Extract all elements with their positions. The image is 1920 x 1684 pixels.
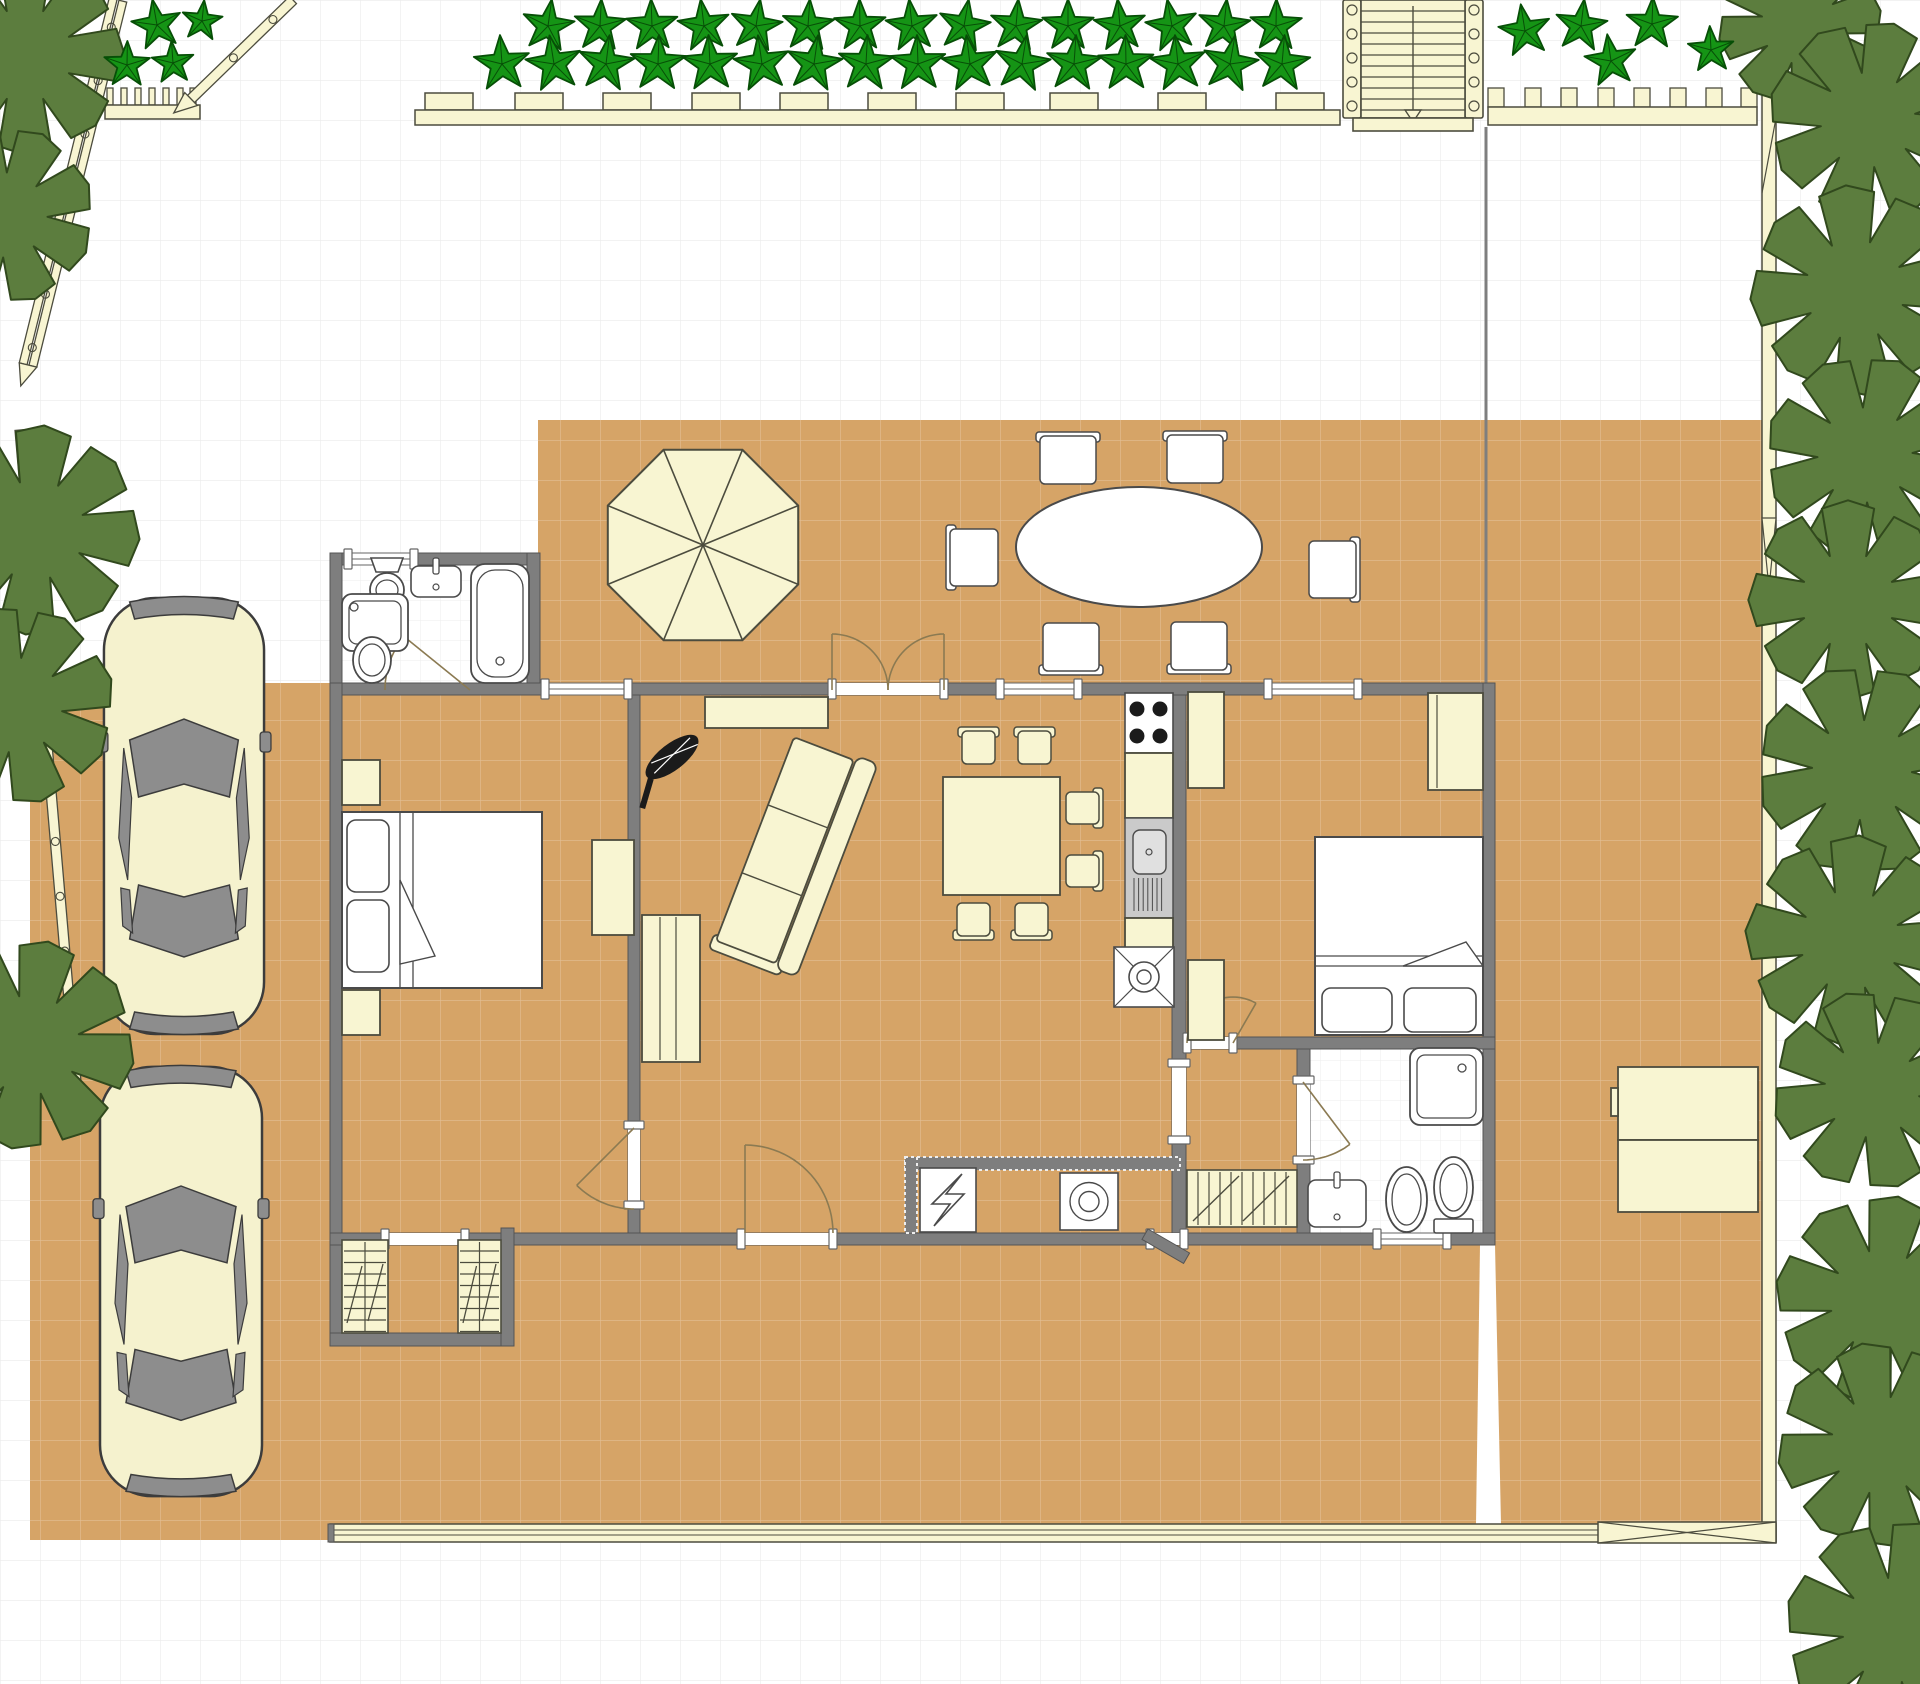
staircase-hall[interactable] [1187,1170,1297,1227]
garden-chair[interactable] [1039,623,1103,675]
garden-chair[interactable] [1036,432,1100,484]
exterior-stairs-right[interactable] [458,1240,501,1333]
dining-chair[interactable] [1066,788,1103,828]
dining-chair[interactable] [1011,903,1052,940]
shower-right-bath[interactable] [1410,1048,1483,1125]
sideboard-living[interactable] [705,697,828,728]
stairs-enc-left [330,1245,342,1345]
right-yard [1495,420,1765,1524]
stairs-enc-right [501,1228,514,1346]
bathtub[interactable] [471,564,529,683]
garden-table-oval[interactable] [1016,487,1262,607]
house-right [1483,683,1495,1245]
garden-table-handle[interactable] [1611,1088,1618,1116]
garden-chair[interactable] [1167,622,1231,674]
toilet-right-2[interactable] [1434,1157,1473,1233]
garden-chair[interactable] [1163,431,1227,483]
fence-bottom[interactable] [328,1522,1776,1543]
partition-left [905,1157,917,1233]
bathL-left [330,553,342,695]
exterior-stairs-left[interactable] [342,1240,388,1333]
nightstand-top[interactable] [342,760,380,805]
shelf-unit-living[interactable] [642,915,700,1062]
garden-table-br-2[interactable] [1618,1140,1758,1212]
dining-chair[interactable] [958,727,999,764]
kitchen-sink-unit[interactable] [1125,818,1173,918]
car-2[interactable] [93,1065,269,1496]
cabinet-right-bedroom-b[interactable] [1188,960,1224,1040]
patio-umbrella[interactable] [608,450,798,640]
dining-chair[interactable] [1014,727,1055,764]
dresser-left-bedroom[interactable] [592,840,634,935]
stairs-enc-bottom [330,1333,514,1346]
kitchen-counter-1[interactable] [1125,753,1173,818]
nightstand-bottom[interactable] [342,990,380,1035]
garden-chair[interactable] [946,525,998,590]
dining-chair[interactable] [953,903,994,940]
plan-svg [0,0,1920,1684]
stove[interactable] [1125,693,1173,753]
appliance-x[interactable] [1114,947,1174,1007]
garden-stairs-top[interactable] [1343,0,1483,131]
washing-machine[interactable] [1060,1173,1118,1230]
bed-right-bedroom[interactable] [1315,837,1483,1035]
toilet-right-1[interactable] [1386,1167,1427,1232]
garden-table-br-1[interactable] [1618,1067,1758,1140]
electrical-panel[interactable] [920,1168,976,1232]
washbasin-right-bath[interactable] [1308,1172,1366,1227]
wardrobe-right-bedroom-a[interactable] [1188,692,1224,788]
long-planter[interactable] [415,93,1340,125]
dining-table-square[interactable] [943,777,1060,895]
car-1[interactable] [97,597,271,1035]
garden-chair[interactable] [1309,537,1360,602]
wardrobe-right-bedroom-c[interactable] [1428,693,1483,790]
toilet-left-bath-2[interactable] [353,637,391,683]
house-left [330,683,342,1245]
floor-plan-canvas [0,0,1920,1684]
bed-left-bedroom[interactable] [342,812,542,988]
dining-chair[interactable] [1066,851,1103,891]
kitchen-counter-2[interactable] [1125,918,1173,948]
